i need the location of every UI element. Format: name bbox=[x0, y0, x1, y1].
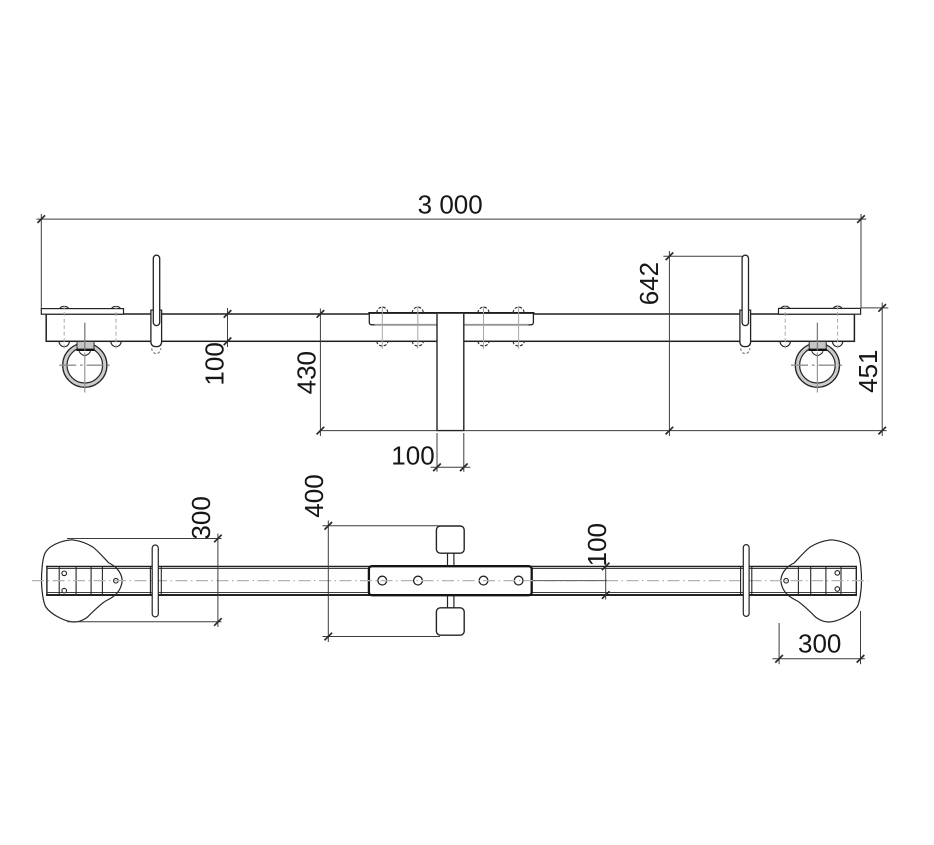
svg-text:100: 100 bbox=[391, 441, 434, 471]
svg-text:430: 430 bbox=[291, 351, 321, 394]
svg-text:3 000: 3 000 bbox=[418, 189, 483, 219]
svg-text:400: 400 bbox=[299, 474, 329, 517]
svg-text:642: 642 bbox=[634, 262, 664, 305]
svg-text:300: 300 bbox=[798, 628, 841, 658]
svg-text:451: 451 bbox=[853, 350, 883, 393]
svg-text:300: 300 bbox=[186, 496, 216, 539]
svg-text:100: 100 bbox=[200, 342, 230, 385]
svg-text:100: 100 bbox=[582, 523, 612, 566]
